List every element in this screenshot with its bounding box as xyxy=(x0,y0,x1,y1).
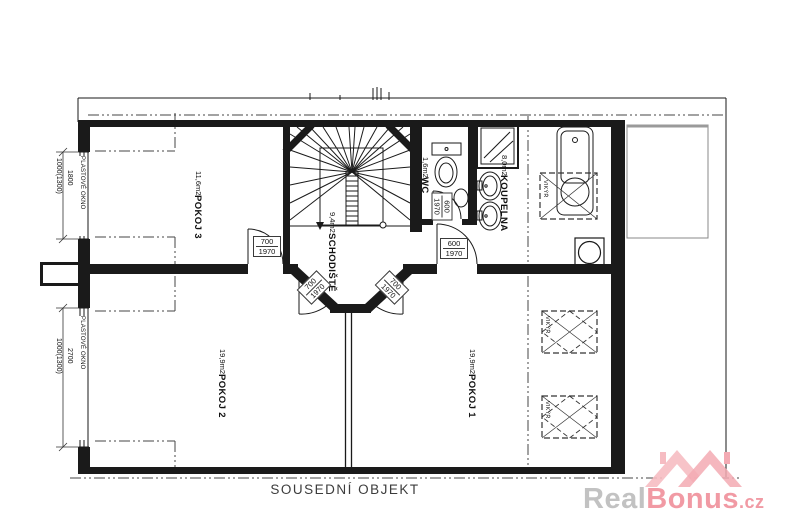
toilet xyxy=(432,143,461,187)
watermark-pink-text: Bonus xyxy=(646,483,739,515)
room-label-pokoj3: POKOJ 311,6m2 xyxy=(192,183,203,239)
door-label-wc: 6001970 xyxy=(432,193,453,221)
skylights xyxy=(540,173,597,438)
room-label-pokoj2: POKOJ 219,9m2 xyxy=(216,368,227,418)
staircase xyxy=(285,125,415,230)
window-sill-1: 1000(1300) xyxy=(55,158,62,236)
skylight-label-pokoj1-b: VIKÝŘ xyxy=(544,401,550,433)
bathtub xyxy=(557,127,593,215)
room-divider xyxy=(346,311,352,467)
roof-terrace-outline xyxy=(627,125,708,238)
window-label-2: PLASTOVÉ OKNO xyxy=(79,316,85,440)
skylight-label-pokoj1-a: VIKÝŘ xyxy=(544,316,550,348)
realbonus-watermark: RealBonus.cz xyxy=(583,483,765,516)
room-label-wc: WC1,6m2 xyxy=(419,148,430,194)
walls xyxy=(40,120,625,474)
window-dim-2700: 2700 xyxy=(66,348,73,408)
skylight-label-bathroom: VIKÝŘ xyxy=(542,180,548,212)
door-label-pokoj3: 7001970 xyxy=(253,236,281,257)
window-sill-2: 1000(1300) xyxy=(55,338,62,420)
wc-corner-sink xyxy=(454,189,468,207)
neighbor-building-label: SOUSEDNÍ OBJEKT xyxy=(240,482,450,497)
window-dim-1800: 1800 xyxy=(66,170,73,225)
room-label-koupelna: KOUPELNA8,0m2 xyxy=(498,174,509,232)
door-label-koupelna: 6001970 xyxy=(440,238,468,259)
window-label-1: PLASTOVÉ OKNO xyxy=(79,156,85,236)
realbonus-logo xyxy=(645,450,742,487)
watermark-gray-text: Real xyxy=(583,483,646,515)
floor-plan-page: POKOJ 311,6m2 SCHODIŠTĚ9,4m2 WC1,6m2 KOU… xyxy=(0,0,800,521)
plan-linework xyxy=(0,0,800,521)
washing-machine xyxy=(575,238,604,267)
watermark-tld-text: .cz xyxy=(739,492,765,512)
room-label-pokoj1: POKOJ 119,9m2 xyxy=(466,368,477,418)
